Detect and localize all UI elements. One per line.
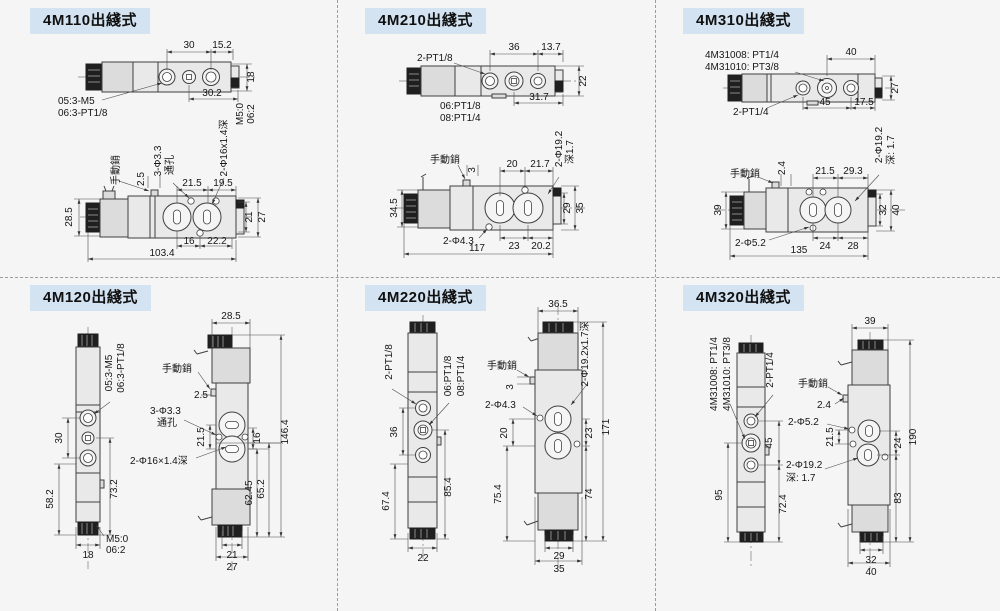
dim-label: 3 — [505, 384, 516, 390]
dim-label: 27 — [226, 562, 238, 573]
solenoid — [102, 62, 133, 92]
dim-label: 190 — [908, 428, 919, 445]
dim-label: 40 — [845, 47, 857, 58]
side-view: 39 手動銷 2.4 2-Φ5.2 21.5 24 190 2-Φ19.2 深:… — [786, 316, 919, 578]
cable-connector — [404, 194, 418, 223]
dim-label: 35 — [553, 564, 565, 575]
dim-label: 20 — [506, 159, 518, 170]
cable-connector — [208, 335, 232, 348]
dim-label: 117 — [469, 243, 485, 254]
dim-label: 2.5 — [194, 390, 208, 401]
dim-label: 29 — [553, 551, 565, 562]
dim-label: 22.2 — [207, 236, 227, 247]
manual-override-nub — [530, 377, 535, 384]
front-view: 05:3-M5 06:3-PT1/8 30 58.2 73.2 18 M5:0 … — [45, 327, 129, 569]
dim-label: 45 — [764, 437, 775, 449]
dim-label: 36 — [508, 42, 520, 53]
through-hole — [216, 434, 222, 440]
cable-connector — [545, 530, 573, 541]
dim-label: 40 — [891, 204, 902, 216]
cable-connector — [218, 525, 242, 537]
dim-label: 22 — [578, 75, 589, 87]
front-view: 2-PT1/8 06:PT1/8 08:PT1/4 36 67.4 85.4 2… — [381, 315, 467, 564]
dim-label: 28 — [847, 241, 859, 252]
dim-label: 24 — [819, 241, 831, 252]
port-note: 08:PT1/4 — [440, 113, 481, 124]
manual-override-label: 手動銷 — [430, 153, 460, 166]
dim-label: 21.5 — [196, 427, 207, 447]
solenoid — [100, 199, 128, 237]
dim-label: 2.4 — [777, 161, 788, 175]
dim-label: 146.4 — [280, 419, 291, 444]
panel-4m310: 4M310出綫式 — [655, 0, 1000, 277]
solenoid — [538, 493, 578, 530]
dim-label: 3 — [467, 167, 478, 173]
hole-note: 3-Φ3.3 — [153, 145, 164, 176]
dim-label: 32 — [878, 204, 889, 216]
drawing-4m110: 30 15.2 18 30.2 05:3-M5 06:3-PT1/8 M5:0 … — [0, 0, 337, 277]
dim-label: 73.2 — [109, 479, 120, 499]
through-hole — [574, 441, 580, 447]
dim-label: 34.5 — [389, 198, 400, 218]
dim-label: 85.4 — [443, 477, 454, 497]
through-hole — [197, 230, 203, 236]
manual-override-nub — [463, 180, 470, 186]
solenoid — [852, 505, 888, 532]
counterbore-note: 深1.7 — [564, 140, 576, 164]
counterbore-note: 2-Φ19.2 — [786, 460, 823, 471]
dim-label: 39 — [713, 204, 724, 216]
dim-label: 62.45 — [244, 480, 255, 505]
port-note: 2-PT1/4 — [733, 107, 769, 118]
port-note: 05:3-M5 — [58, 96, 95, 107]
dim-label: 40 — [865, 567, 877, 578]
counterbore-note: 2-Φ19.2 — [554, 130, 565, 167]
dim-label: 58.2 — [45, 489, 56, 509]
dim-label: 17.5 — [854, 97, 874, 108]
solenoid — [742, 74, 767, 102]
cable-connector — [730, 196, 744, 225]
port-note: 4M31010: PT3/8 — [705, 62, 779, 73]
dim-label: 72.4 — [778, 494, 789, 514]
dim-label: 95 — [714, 489, 725, 501]
manual-override-label: 手動銷 — [487, 359, 517, 372]
cable-connector — [739, 343, 763, 353]
dim-label: 21.5 — [815, 166, 835, 177]
dim-label: 16 — [252, 432, 263, 444]
hole-note: 2-Φ4.3 — [485, 400, 516, 411]
dim-label: 28.5 — [64, 207, 75, 227]
dimensions: 手動銷 2.5 3-Φ3.3 通孔 21.5 19.5 2-Φ16x1.4深 2… — [64, 120, 268, 262]
solenoid-top-bump — [103, 191, 115, 199]
dim-label: 65.2 — [256, 479, 267, 499]
dim-label: 27 — [257, 211, 268, 223]
port-note: 08:PT1/4 — [456, 355, 467, 396]
hole-note: 2-Φ5.2 — [788, 417, 819, 428]
dim-label: 35 — [575, 202, 586, 214]
cable-connector — [858, 340, 883, 350]
port-note: 2-PT1/8 — [417, 53, 453, 64]
port-note: 2-PT1/4 — [765, 352, 776, 388]
dim-label: 135 — [791, 245, 808, 256]
counterbore-note: 2-Φ19.2 — [874, 126, 885, 163]
cable-connector — [407, 68, 421, 94]
dim-label: 39 — [864, 316, 876, 327]
hole-note: 通孔 — [157, 417, 177, 429]
dim-label: 103.4 — [149, 248, 174, 259]
drawing-4m320: 4M31008: PT1/4 4M31010: PT3/8 2-PT1/4 45… — [655, 277, 1000, 611]
dim-label: 75.4 — [493, 484, 504, 504]
through-hole — [188, 198, 194, 204]
dim-label: 29 — [562, 202, 573, 214]
counterbore-note: 深: 1.7 — [885, 135, 897, 165]
dim-label: 22 — [417, 553, 429, 564]
panel-4m320: 4M320出綫式 4M310 — [655, 277, 1000, 611]
dim-label: 19.5 — [213, 178, 233, 189]
dim-label: 83 — [893, 492, 904, 504]
dim-label: 24 — [893, 437, 904, 449]
solenoid — [212, 348, 250, 383]
dim-label: 2.4 — [817, 400, 831, 411]
dim-label: 30 — [54, 432, 65, 444]
dim-label: 30.2 — [202, 88, 222, 99]
dim-label: 31.7 — [529, 92, 549, 103]
top-view: 30 15.2 18 30.2 05:3-M5 06:3-PT1/8 M5:0 … — [58, 40, 257, 125]
connector-pin — [524, 521, 538, 525]
port-note: 06:PT1/8 — [440, 101, 481, 112]
through-hole — [522, 187, 528, 193]
dim-label: 29.3 — [843, 166, 863, 177]
through-hole — [850, 441, 856, 447]
port-note: M5:0 — [106, 534, 129, 545]
cable-connector — [410, 322, 435, 333]
port-note: 05:3-M5 — [104, 354, 115, 391]
through-hole — [849, 427, 855, 433]
cable-connector — [728, 75, 742, 101]
drawing-4m310: 4M31008: PT1/4 4M31010: PT3/8 40 27 2-PT… — [655, 0, 1000, 277]
hole-note: 2-Φ5.2 — [735, 238, 766, 249]
counterbore-note: 深: 1.7 — [786, 472, 816, 484]
dim-label: 18 — [246, 71, 257, 83]
through-hole — [242, 434, 248, 440]
solenoid — [421, 66, 455, 96]
cable-connector — [86, 64, 102, 90]
dim-label: 36.5 — [548, 299, 568, 310]
manual-override-label: 手動銷 — [730, 167, 760, 180]
side-view: 手動銷 2.5 3-Φ3.3 通孔 21.5 19.5 2-Φ16x1.4深 2… — [64, 120, 268, 262]
dim-label: 23 — [584, 427, 595, 439]
port-note: 06:3-PT1/8 — [116, 343, 127, 393]
port-note: 2-PT1/8 — [384, 344, 395, 380]
manual-override-nub — [772, 182, 779, 188]
connector-pin — [198, 516, 212, 520]
dim-label: 2.5 — [136, 172, 147, 186]
cable-connector — [410, 528, 435, 539]
solenoid — [538, 333, 578, 370]
through-hole — [806, 189, 812, 195]
dim-label: 171 — [601, 418, 612, 435]
dimensions: 28.5 手動銷 2.5 3-Φ3.3 通孔 21.5 16 146.4 2-Φ… — [130, 311, 291, 573]
port-note: 06:3-PT1/8 — [58, 108, 108, 119]
port-note: 4M31008: PT1/4 — [709, 337, 720, 411]
connector-pin — [838, 361, 852, 365]
dim-label: 20.2 — [531, 241, 551, 252]
port-note: 06:2 — [106, 545, 126, 556]
solenoid — [744, 192, 766, 229]
side-view: 28.5 手動銷 2.5 3-Φ3.3 通孔 21.5 16 146.4 2-Φ… — [130, 311, 291, 573]
side-view: 手動銷 3 20 21.7 2-Φ19.2 深1.7 34.5 29 35 2-… — [389, 130, 587, 258]
side-view: 36.5 手動銷 3 2-Φ4.3 20 75.4 23 171 74 2-Φ1… — [485, 299, 612, 575]
solenoid — [852, 350, 888, 385]
cable-connector — [78, 334, 98, 347]
side-view: 手動銷 2.4 21.5 29.3 2-Φ19.2 深: 1.7 39 32 4… — [713, 126, 905, 260]
dim-label: 21 — [226, 550, 238, 561]
counterbore-note: 2-Φ19.2x1.7深 — [579, 321, 591, 386]
port-note: M5:0 — [235, 102, 246, 125]
hole-note: 通孔 — [164, 155, 176, 175]
connector-pin — [838, 523, 852, 527]
catalog-page: 4M110出綫式 30 — [0, 0, 1000, 611]
dim-label: 15.2 — [212, 40, 232, 51]
dim-label: 28.5 — [221, 311, 241, 322]
front-view: 4M31008: PT1/4 4M31010: PT3/8 2-PT1/4 45… — [709, 335, 789, 567]
panel-4m210: 4M210出綫式 — [337, 0, 655, 277]
counterbore-note: 2-Φ16x1.4深 — [218, 120, 230, 177]
dim-label: 27 — [890, 82, 901, 94]
cable-connector — [543, 322, 573, 333]
manual-override-label: 手動銷 — [162, 362, 192, 375]
dim-label: 16 — [183, 236, 195, 247]
dim-label: 20 — [499, 427, 510, 439]
solenoid — [418, 190, 450, 228]
dim-label: 21.5 — [825, 427, 836, 447]
port-note: 06:2 — [246, 104, 257, 124]
dim-label: 21.5 — [182, 178, 202, 189]
hole-note: 3-Φ3.3 — [150, 406, 181, 417]
dim-label: 30 — [183, 40, 195, 51]
cable-connector — [86, 203, 100, 232]
port-note: 4M31010: PT3/8 — [722, 337, 733, 411]
dim-label: 67.4 — [381, 491, 392, 511]
drawing-4m120: 05:3-M5 06:3-PT1/8 30 58.2 73.2 18 M5:0 … — [0, 277, 337, 611]
manual-override-nub — [211, 389, 216, 396]
port-note: 4M31008: PT1/4 — [705, 50, 779, 61]
dim-label: 13.7 — [541, 42, 561, 53]
through-hole — [537, 415, 543, 421]
dim-label: 21.7 — [530, 159, 550, 170]
manual-override-label: 手動銷 — [798, 377, 828, 390]
panel-4m110: 4M110出綫式 30 — [0, 0, 337, 277]
dim-label: 32 — [865, 555, 877, 566]
port-note: 06:PT1/8 — [443, 355, 454, 396]
connector-pin — [194, 350, 208, 354]
through-hole — [213, 198, 219, 204]
dim-label: 45 — [819, 97, 831, 108]
cable-connector — [78, 522, 98, 535]
manual-override-nub — [151, 190, 158, 196]
drawing-4m210: 2-PT1/8 36 13.7 22 06:PT1/8 08:PT1/4 31.… — [337, 0, 655, 277]
top-view: 2-PT1/8 36 13.7 22 06:PT1/8 08:PT1/4 31.… — [399, 42, 589, 124]
panel-4m120: 4M120出綫式 — [0, 277, 337, 611]
dim-label: 18 — [82, 550, 94, 561]
manual-override-label: 手動銷 — [109, 155, 122, 185]
dim-label: 23 — [508, 241, 520, 252]
top-view: 4M31008: PT1/4 4M31010: PT3/8 40 27 2-PT… — [705, 47, 901, 118]
dim-label: 36 — [389, 426, 400, 438]
drawing-4m220: 2-PT1/8 06:PT1/8 08:PT1/4 36 67.4 85.4 2… — [337, 277, 655, 611]
through-hole — [820, 189, 826, 195]
counterbore-note: 2-Φ16×1.4深 — [130, 455, 188, 467]
dim-label: 74 — [584, 488, 595, 500]
panel-4m220: 4M220出綫式 — [337, 277, 655, 611]
connector-pin — [421, 174, 426, 190]
dim-label: 21 — [244, 211, 255, 223]
